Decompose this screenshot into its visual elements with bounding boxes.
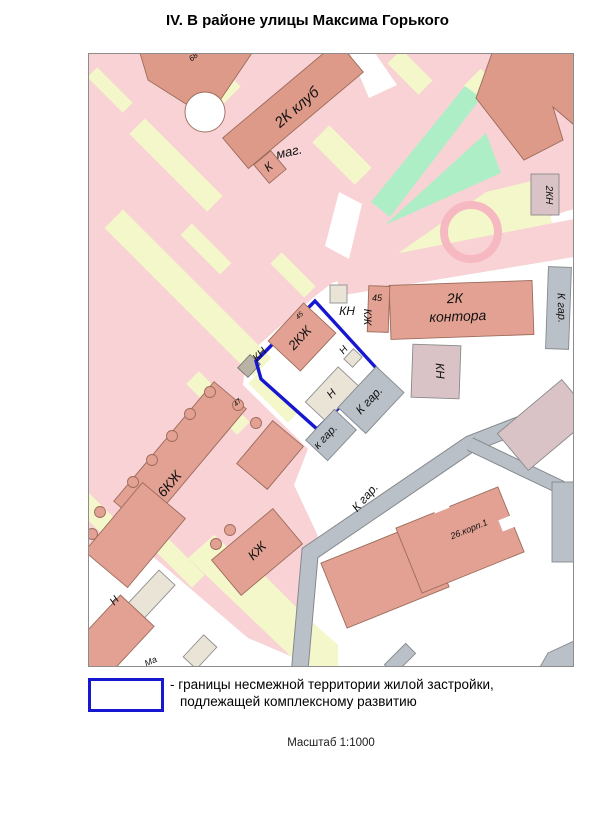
boundary-legend-symbol [88, 678, 164, 712]
balcony [147, 455, 158, 466]
balcony [167, 431, 178, 442]
building-68-notch [185, 92, 225, 132]
garage-row [552, 482, 574, 562]
map-label-8: КН [339, 304, 355, 318]
map-label-6: контора [429, 307, 487, 325]
building-kn-small [330, 285, 347, 303]
page-title: IV. В районе улицы Максима Горького [0, 12, 615, 29]
balcony [95, 507, 106, 518]
map-label-7: 45 [372, 293, 383, 303]
balcony [128, 477, 139, 488]
scale-label: Масштаб 1:1000 [88, 737, 574, 749]
map-canvas: 68-2К клубмаг.К2КН2Кконтора45КНКЖК гар.К… [88, 53, 574, 667]
map-plan: 68-2К клубмаг.К2КН2Кконтора45КНКЖК гар.К… [88, 53, 574, 667]
balcony [225, 525, 236, 536]
legend-text: - границы несмежной территории жилой зас… [170, 676, 570, 710]
balcony [205, 387, 216, 398]
balcony [251, 418, 262, 429]
legend-line-1: - границы несмежной территории жилой зас… [170, 676, 570, 693]
map-label-10: К гар. [554, 293, 567, 324]
map-label-11: КН [433, 363, 448, 380]
balcony [88, 529, 98, 540]
map-label-5: 2К [446, 290, 464, 307]
map-label-4: 2КН [543, 185, 554, 205]
legend-line-2: подлежащей комплексному развитию [170, 693, 570, 710]
balcony [211, 539, 222, 550]
map-label-9: КЖ [361, 309, 373, 326]
balcony [185, 409, 196, 420]
page: IV. В районе улицы Максима Горького [0, 0, 615, 822]
